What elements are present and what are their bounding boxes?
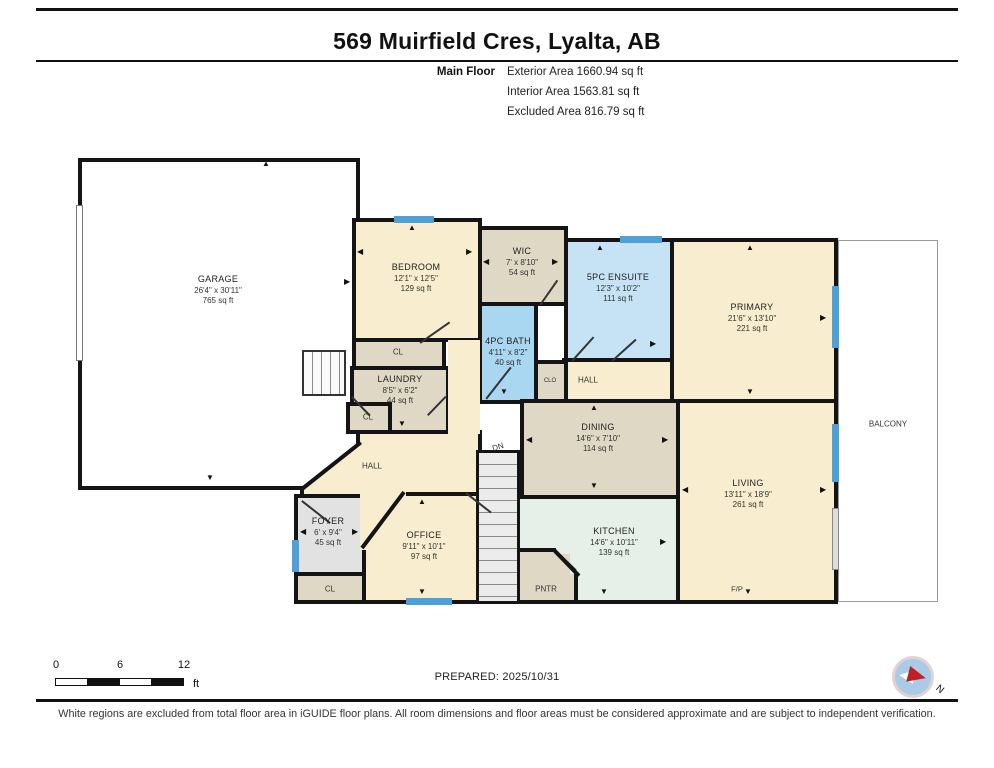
label-office: OFFICE 9'11" x 10'1" 97 sq ft <box>402 530 445 562</box>
prepared-date: PREPARED: 2025/10/31 <box>0 671 994 683</box>
floor-label: Main Floor <box>380 66 495 78</box>
dim-arrow-icon: ▶ <box>660 538 666 546</box>
dim-arrow-icon: ▶ <box>820 486 826 494</box>
exterior-area: Exterior Area 1660.94 sq ft <box>507 66 643 78</box>
window-living <box>832 424 839 482</box>
scale-mid: 6 <box>117 659 123 671</box>
dim-arrow-icon: ▶ <box>352 528 358 536</box>
disclaimer-text: White regions are excluded from total fl… <box>20 708 974 720</box>
dim-arrow-icon: ◀ <box>483 258 489 266</box>
label-fireplace: F/P <box>731 585 743 594</box>
compass-icon <box>892 656 934 698</box>
garage-steps <box>302 350 346 396</box>
dim-arrow-icon: ▼ <box>500 388 508 396</box>
staircase-down <box>476 450 520 604</box>
title-rule <box>36 60 958 62</box>
dim-arrow-icon: ◀ <box>357 248 363 256</box>
dim-arrow-icon: ▲ <box>590 404 598 412</box>
dim-arrow-icon: ▼ <box>206 474 214 482</box>
label-living: LIVING 13'11" x 18'9" 261 sq ft <box>724 478 772 510</box>
window-primary <box>832 286 839 348</box>
dim-arrow-icon: ▶ <box>650 340 656 348</box>
dim-arrow-icon: ▼ <box>398 420 406 428</box>
label-foyer: FOYER 6' x 9'4" 45 sq ft <box>312 516 345 548</box>
dim-arrow-icon: ▲ <box>596 244 604 252</box>
top-rule <box>36 8 958 11</box>
scale-start: 0 <box>53 659 59 671</box>
label-kitchen: KITCHEN 14'6" x 10'11" 139 sq ft <box>590 526 638 558</box>
dim-arrow-icon: ▶ <box>344 278 350 286</box>
label-clo: CLO <box>544 378 556 384</box>
label-cl-foyer: CL <box>325 585 335 594</box>
scale-end: 12 <box>178 659 190 671</box>
window-office <box>406 598 452 605</box>
label-wic: WIC 7' x 8'10" 54 sq ft <box>506 246 538 278</box>
label-primary: PRIMARY 21'6" x 13'10" 221 sq ft <box>728 302 776 334</box>
dim-arrow-icon: ▲ <box>262 160 270 168</box>
label-cl-bedroom: CL <box>393 348 403 357</box>
label-hall-upper: HALL <box>578 376 598 385</box>
window-bedroom <box>394 216 434 223</box>
hall-corridor-patch <box>448 340 480 434</box>
floor-plan-page: 569 Muirfield Cres, Lyalta, AB Main Floo… <box>0 0 994 768</box>
dim-arrow-icon: ▲ <box>408 224 416 232</box>
north-label: N <box>933 683 946 696</box>
label-cl-laundry: CL <box>363 413 373 422</box>
dim-arrow-icon: ▲ <box>418 498 426 506</box>
dim-arrow-icon: ▶ <box>662 436 668 444</box>
dim-arrow-icon: ▼ <box>600 588 608 596</box>
label-laundry: LAUNDRY 8'5" x 6'2" 44 sq ft <box>378 374 423 406</box>
window-ensuite <box>620 236 662 243</box>
dim-arrow-icon: ▶ <box>466 248 472 256</box>
dim-arrow-icon: ▼ <box>744 588 752 596</box>
label-balcony: BALCONY <box>869 420 907 429</box>
label-dining: DINING 14'6" x 7'10" 114 sq ft <box>576 422 620 454</box>
dim-arrow-icon: ◀ <box>300 528 306 536</box>
room-garage <box>78 158 360 490</box>
dim-arrow-icon: ▶ <box>552 258 558 266</box>
dim-arrow-icon: ◀ <box>526 436 532 444</box>
interior-area: Interior Area 1563.81 sq ft <box>507 86 639 98</box>
label-bedroom: BEDROOM 12'1" x 12'5" 129 sq ft <box>392 262 441 294</box>
window-foyer <box>292 540 299 572</box>
balcony-door <box>832 508 839 570</box>
page-title: 569 Muirfield Cres, Lyalta, AB <box>0 28 994 55</box>
label-pantry: PNTR <box>535 585 557 594</box>
footer-rule <box>36 699 958 702</box>
garage-side-window <box>76 205 83 361</box>
dim-arrow-icon: ◀ <box>682 486 688 494</box>
dim-arrow-icon: ▲ <box>746 244 754 252</box>
label-garage: GARAGE 26'4" x 30'11" 765 sq ft <box>194 274 242 306</box>
label-ensuite: 5PC ENSUITE 12'3" x 10'2" 111 sq ft <box>587 272 649 304</box>
dim-arrow-icon: ▶ <box>820 314 826 322</box>
excluded-area: Excluded Area 816.79 sq ft <box>507 106 644 118</box>
dim-arrow-icon: ▼ <box>746 388 754 396</box>
dim-arrow-icon: ▼ <box>590 482 598 490</box>
label-bath: 4PC BATH 4'11" x 8'2" 40 sq ft <box>485 336 531 368</box>
room-pantry <box>516 548 578 604</box>
dim-arrow-icon: ▼ <box>418 588 426 596</box>
label-hall-lower: HALL <box>362 462 382 471</box>
